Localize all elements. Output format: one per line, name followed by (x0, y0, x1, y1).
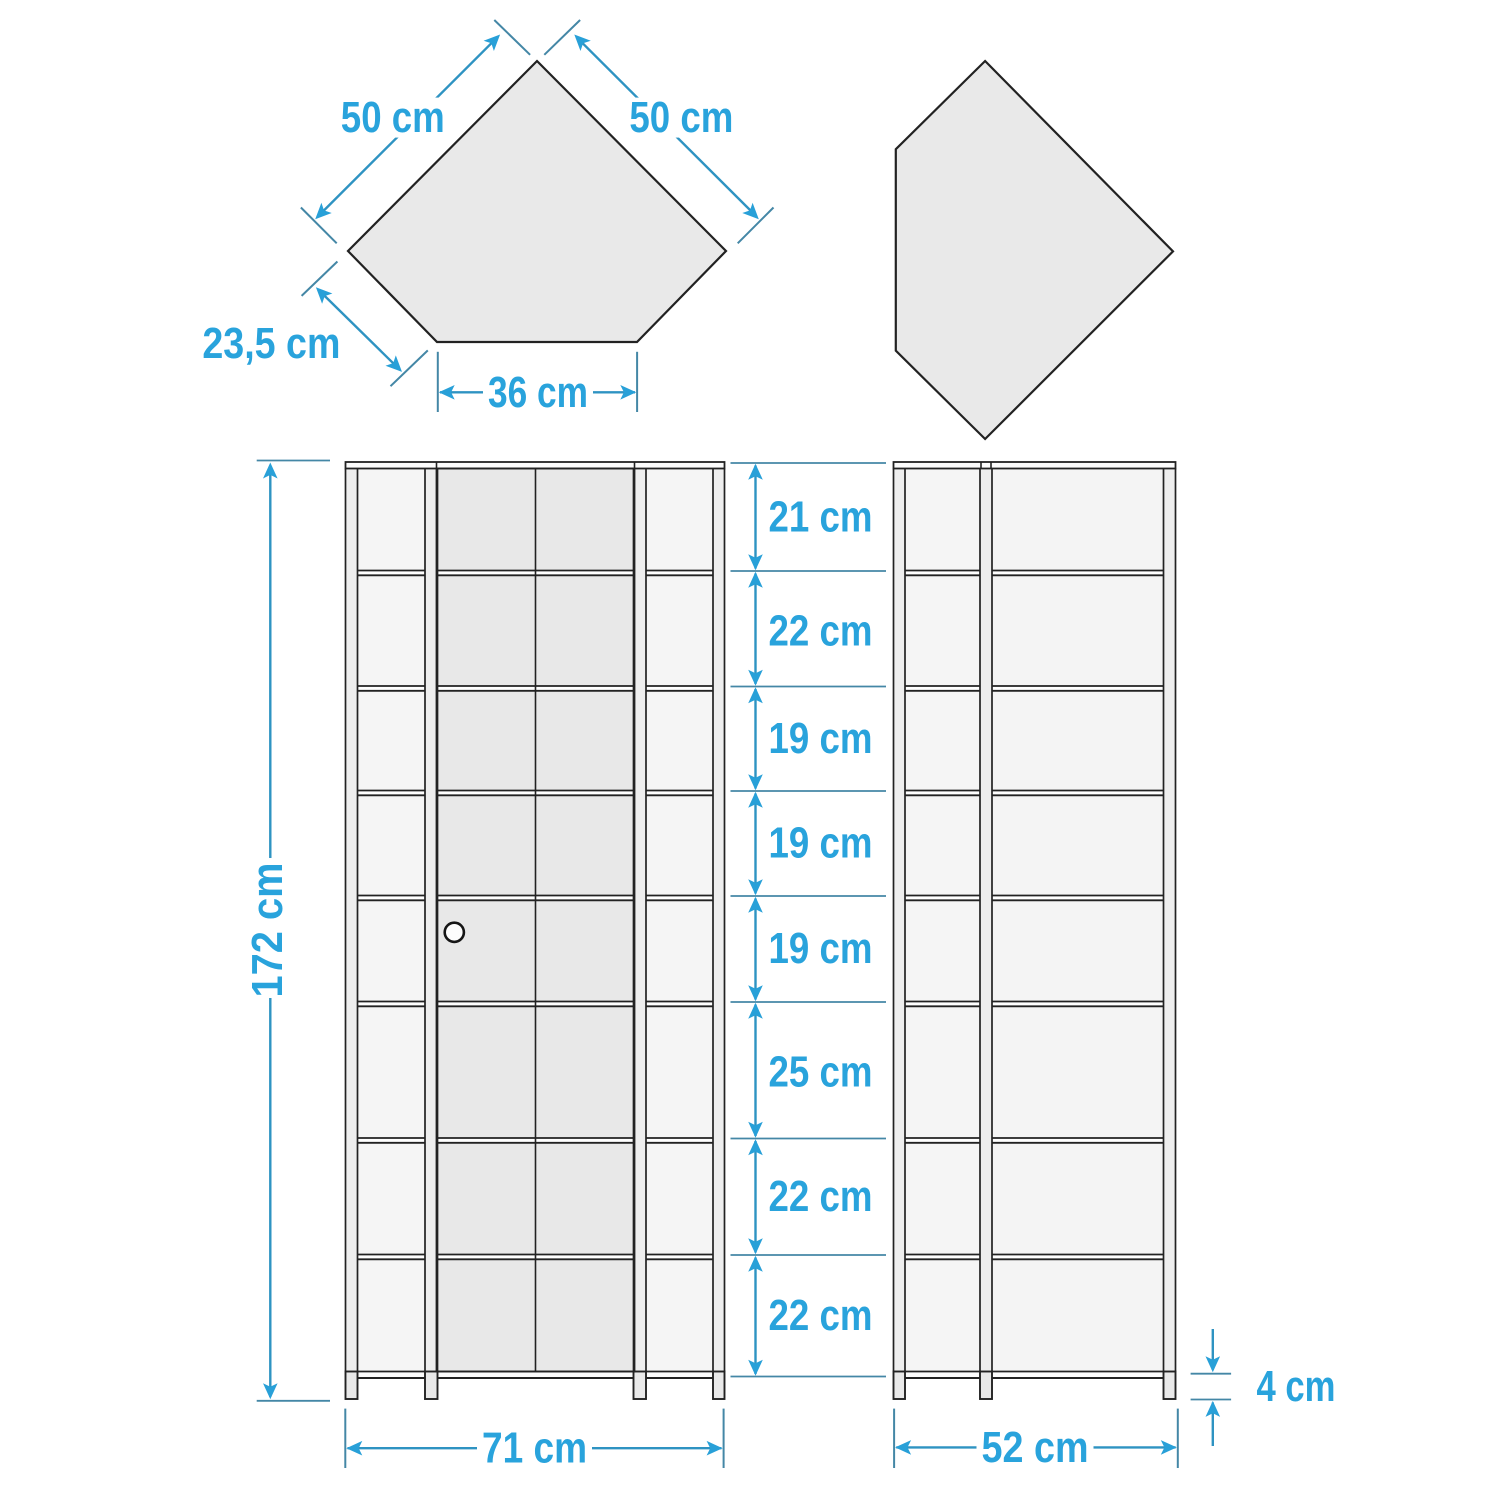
svg-text:23,5 cm: 23,5 cm (202, 319, 340, 368)
svg-text:19 cm: 19 cm (769, 819, 873, 868)
svg-text:25 cm: 25 cm (769, 1048, 873, 1097)
svg-text:4 cm: 4 cm (1257, 1362, 1336, 1411)
svg-text:52 cm: 52 cm (982, 1423, 1089, 1472)
svg-text:22 cm: 22 cm (769, 1172, 873, 1221)
svg-text:50 cm: 50 cm (341, 93, 445, 142)
svg-text:22 cm: 22 cm (769, 1291, 873, 1340)
svg-text:19 cm: 19 cm (769, 714, 873, 763)
svg-text:50 cm: 50 cm (629, 93, 733, 142)
svg-text:172 cm: 172 cm (243, 863, 292, 998)
svg-text:21 cm: 21 cm (769, 492, 873, 541)
svg-text:19 cm: 19 cm (769, 924, 873, 973)
svg-text:71 cm: 71 cm (482, 1424, 587, 1473)
svg-text:22 cm: 22 cm (769, 607, 873, 656)
svg-text:36 cm: 36 cm (488, 368, 588, 417)
